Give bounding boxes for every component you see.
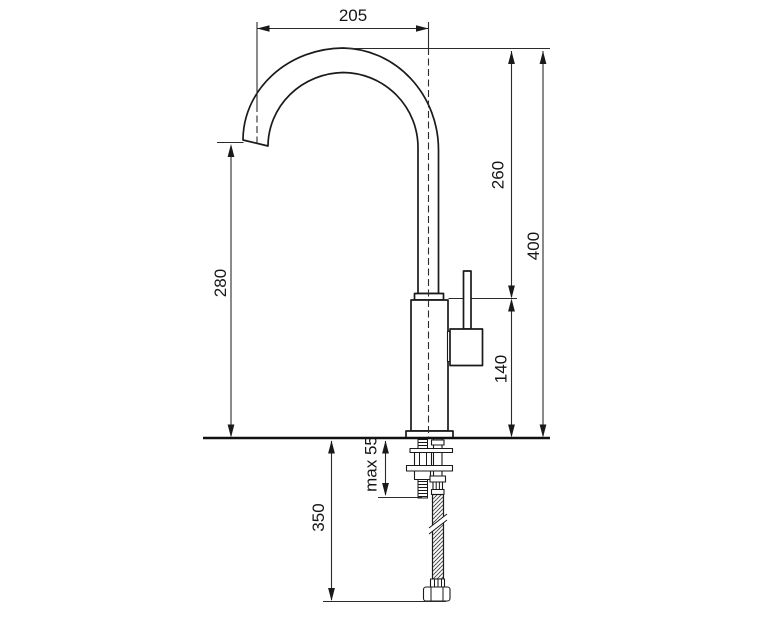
arrowhead-up xyxy=(508,299,515,312)
handle-block xyxy=(450,329,483,366)
mounting-washer-upper xyxy=(410,449,453,453)
dimension-overall-height: 400 xyxy=(524,51,546,438)
arrowhead-down xyxy=(540,425,547,438)
dim-label-205: 205 xyxy=(339,6,367,25)
dim-label-350: 350 xyxy=(309,503,328,531)
arrowhead-down xyxy=(382,483,389,496)
arrowhead-up xyxy=(382,441,389,454)
arrowhead-left xyxy=(257,25,270,31)
mounting-plate-lower xyxy=(407,466,453,472)
dim-label-400: 400 xyxy=(524,232,543,260)
dimension-spout-outlet-height: 280 xyxy=(211,143,244,438)
faucet-technical-drawing: 205 260 140 400 280 max 55 xyxy=(0,0,758,620)
body-cylinder xyxy=(411,300,448,431)
arrowhead-down xyxy=(508,425,515,438)
arrowhead-up xyxy=(540,51,547,64)
arrowhead-down xyxy=(508,286,515,299)
faucet-spout xyxy=(243,48,439,294)
hose-ring xyxy=(432,490,445,495)
stud-nut-upper xyxy=(415,453,432,466)
drawing-canvas: 205 260 140 400 280 max 55 xyxy=(0,0,758,620)
stud-nut-lower xyxy=(415,471,431,480)
dim-label-140: 140 xyxy=(492,355,511,383)
faucet-body xyxy=(406,294,453,439)
hose-top-collar xyxy=(432,440,445,445)
hose-hex-fitting xyxy=(430,476,446,482)
mounting-hardware xyxy=(407,438,453,498)
dim-label-max55: max 55 xyxy=(362,436,381,492)
dim-label-260: 260 xyxy=(489,161,508,189)
hose-end-nut xyxy=(424,587,451,601)
arrowhead-up xyxy=(228,144,235,157)
dim-label-280: 280 xyxy=(211,269,230,297)
arrowhead-down xyxy=(228,425,235,438)
hose-ferrule xyxy=(433,482,443,490)
braided-hose xyxy=(433,495,444,580)
handle-lever xyxy=(448,271,483,366)
handle-rod xyxy=(464,271,472,329)
arrowhead-up xyxy=(328,441,335,454)
dimension-body-section: 140 xyxy=(492,299,515,438)
arrowhead-right xyxy=(416,25,429,31)
dimension-upper-section: 260 xyxy=(489,51,515,299)
arrowhead-up xyxy=(508,51,515,64)
arrowhead-down xyxy=(328,588,335,601)
gooseneck-spout-tube xyxy=(243,48,439,294)
